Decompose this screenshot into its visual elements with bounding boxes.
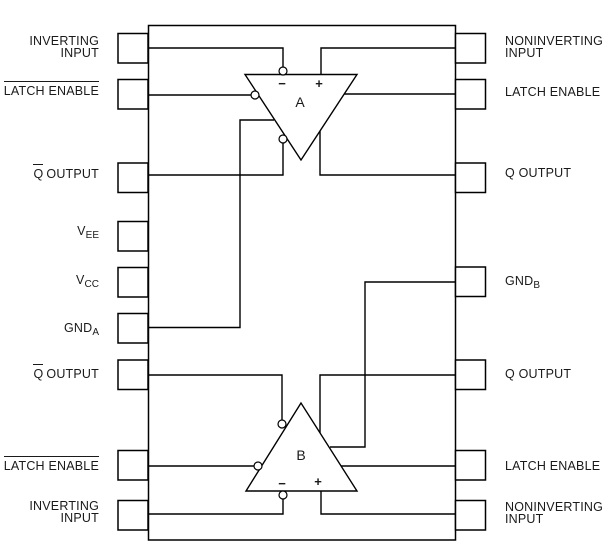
bubble-inverting-input-a [279,67,287,75]
overlined-q: Q [33,364,43,380]
pin-label-line: INPUT [505,513,602,525]
pin-box-latch-enable-right-b [456,451,486,481]
pin-label-qbar-output-b: QOUTPUT [33,364,99,380]
plus-sign-a: + [315,76,323,91]
overlined-text: LATCH ENABLE [4,81,99,97]
pin-box-inverting-input-a [118,34,148,64]
pin-box-q-output-a [456,163,486,193]
pin-label-gnd-a: GNDA [64,322,99,339]
bubble-latch-enable-b [254,462,262,470]
minus-sign-b: − [278,476,286,491]
pin-box-qbar-output-a [118,163,148,193]
pin-box-noninverting-input-b [456,501,486,531]
pin-box-latch-enable-left-a [118,80,148,110]
overlined-text: LATCH ENABLE [4,456,99,472]
pin-label-text: OUTPUT [46,367,99,381]
pin-label-text: V [76,273,85,287]
pin-label-vcc: VCC [76,274,99,291]
pin-box-noninverting-input-a [456,34,486,64]
pin-box-inverting-input-b [118,501,148,531]
pin-label-vee: VEE [77,225,99,242]
pin-box-q-output-b [456,360,486,390]
pin-box-latch-enable-left-b [118,451,148,481]
pin-label-text: GND [505,274,533,288]
subscript-text: A [92,327,99,338]
pin-box-gnd-b [456,267,486,297]
pin-label-qbar-output-a: QOUTPUT [33,164,99,180]
subscript-text: B [533,280,540,291]
pin-label-text: Q OUTPUT [505,367,571,381]
bubble-qbar-output-b [278,420,286,428]
pin-box-vcc [118,268,148,298]
functional-block-diagram: − + A − + B INVERTING INPUT LATCH ENABLE… [0,0,602,551]
pin-box-gnd-a [118,314,148,344]
pin-label-gnd-b: GNDB [505,275,540,292]
pin-label-latch-enable-left-b: LATCH ENABLE [4,456,99,472]
pin-label-inverting-input-b: INVERTING INPUT [29,500,99,524]
pin-label-latch-enable-right-a: LATCH ENABLE [505,86,600,98]
pin-label-noninverting-input-a: NONINVERTING INPUT [505,35,602,59]
pin-label-text: GND [64,321,92,335]
pin-label-q-output-b: Q OUTPUT [505,368,571,380]
subscript-text: CC [85,279,99,290]
pin-label-q-output-a: Q OUTPUT [505,167,571,179]
overlined-q: Q [33,164,43,180]
minus-sign-a: − [278,76,286,91]
bubble-latch-enable-a [251,91,259,99]
pin-label-text: V [77,224,86,238]
comparator-a-label: A [295,94,305,110]
pin-label-inverting-input-a: INVERTING INPUT [29,35,99,59]
pin-box-qbar-output-b [118,360,148,390]
comparator-b-label: B [296,447,305,463]
bubble-qbar-output-a [279,135,287,143]
bubble-inverting-input-b [279,491,287,499]
plus-sign-b: + [314,474,322,489]
pin-label-text: Q OUTPUT [505,166,571,180]
pin-label-line: INPUT [505,47,602,59]
pin-label-line: INPUT [29,47,99,59]
pin-label-text: LATCH ENABLE [505,85,600,99]
subscript-text: EE [86,230,99,241]
pin-box-latch-enable-right-a [456,80,486,110]
pin-label-latch-enable-left-a: LATCH ENABLE [4,81,99,97]
pin-label-line: INPUT [29,512,99,524]
pin-label-latch-enable-right-b: LATCH ENABLE [505,460,600,472]
pin-label-noninverting-input-b: NONINVERTING INPUT [505,501,602,525]
pin-box-vee [118,222,148,252]
pin-label-text: OUTPUT [46,167,99,181]
pin-label-text: LATCH ENABLE [505,459,600,473]
